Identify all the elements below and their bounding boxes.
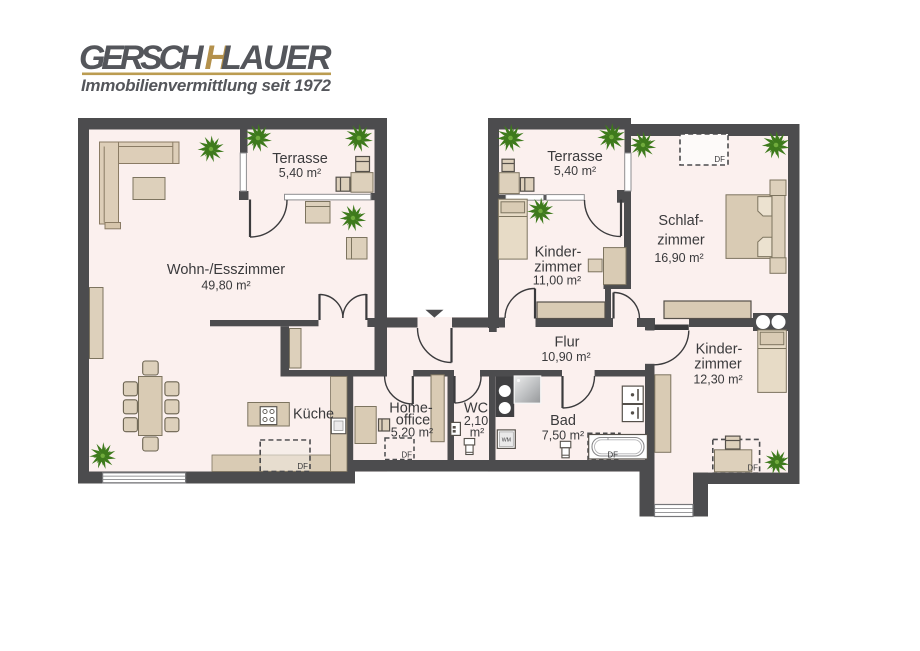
svg-text:10,90 m²: 10,90 m²	[541, 350, 590, 364]
svg-text:LAUER: LAUER	[221, 39, 332, 77]
svg-text:Immobilienvermittlung seit 197: Immobilienvermittlung seit 1972	[81, 76, 332, 95]
svg-text:WM: WM	[502, 438, 511, 444]
svg-text:49,80 m²: 49,80 m²	[201, 279, 250, 293]
svg-text:DF: DF	[747, 464, 758, 473]
svg-text:Bad: Bad	[550, 413, 576, 429]
svg-text:5,40 m²: 5,40 m²	[279, 166, 321, 180]
svg-text:5,20 m²: 5,20 m²	[391, 426, 433, 440]
svg-text:DF: DF	[714, 155, 725, 164]
svg-text:m²: m²	[470, 426, 485, 440]
svg-text:DF: DF	[607, 451, 618, 460]
svg-text:Kinder-: Kinder-	[696, 342, 743, 358]
svg-text:Kinder-: Kinder-	[535, 245, 582, 261]
svg-text:DF: DF	[401, 451, 412, 460]
svg-text:GERSCH: GERSCH	[79, 39, 205, 77]
svg-text:DF: DF	[297, 462, 308, 471]
svg-text:11,00 m²: 11,00 m²	[533, 274, 581, 288]
svg-text:12,30 m²: 12,30 m²	[693, 373, 742, 387]
svg-text:Schlaf-: Schlaf-	[658, 213, 703, 229]
svg-text:zimmer: zimmer	[694, 357, 742, 373]
svg-text:Küche: Küche	[293, 407, 334, 423]
svg-text:Terrasse: Terrasse	[272, 151, 328, 167]
svg-text:Wohn-/Esszimmer: Wohn-/Esszimmer	[167, 262, 285, 278]
svg-text:zimmer: zimmer	[657, 233, 705, 249]
svg-text:Terrasse: Terrasse	[547, 149, 603, 165]
svg-text:5,40 m²: 5,40 m²	[554, 164, 596, 178]
svg-text:16,90 m²: 16,90 m²	[654, 251, 703, 265]
svg-text:Flur: Flur	[555, 335, 580, 351]
svg-text:7,50 m²: 7,50 m²	[542, 429, 584, 443]
